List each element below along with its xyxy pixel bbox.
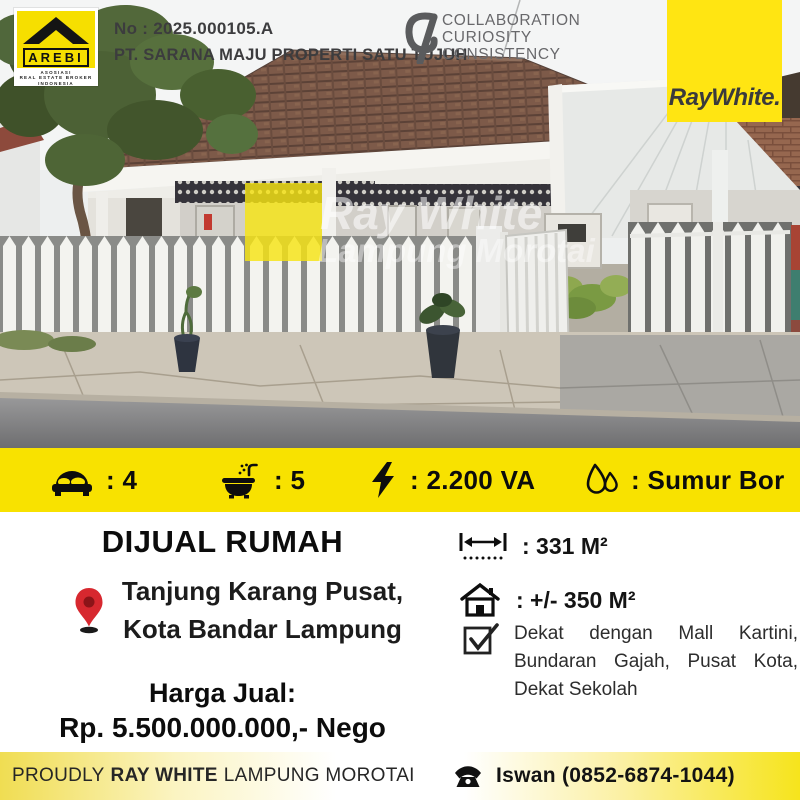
footer-office-name: LAMPUNG MOROTAI [224, 765, 415, 787]
seventeen-monogram-icon [398, 8, 438, 64]
location-row: Tanjung Karang Pusat, Kota Bandar Lampun… [30, 572, 445, 648]
raywhite-logo: RayWhite. [667, 0, 782, 122]
land-size-row: : 331 M² [458, 526, 636, 566]
phone-icon [452, 763, 484, 789]
agent-phone: Iswan (0852-6874-1044) [496, 764, 735, 788]
electricity-value: : 2.200 VA [410, 465, 535, 496]
water-drop-icon [583, 460, 619, 500]
listing-details: DIJUAL RUMAH Tanjung Karang Pusat, Kota … [0, 512, 800, 752]
arebi-sub-line3: INDONESIA [20, 81, 93, 87]
bedrooms-item: : 4 [50, 448, 137, 512]
bedrooms-count: : 4 [106, 465, 137, 496]
water-source-value: : Sumur Bor [631, 465, 785, 496]
arebi-logo-badge: AREBI [17, 11, 95, 68]
price-label: Harga Jual: [0, 678, 445, 709]
electricity-icon [368, 460, 398, 500]
watermark-yellow-box [245, 183, 322, 261]
values-line3: CONSISTENCY [442, 46, 580, 63]
location-line1: Tanjung Karang Pusat, [122, 572, 403, 610]
nearby-text: Dekat dengan Mall Kartini, Bundaran Gaja… [514, 620, 798, 704]
nearby-row: Dekat dengan Mall Kartini, Bundaran Gaja… [462, 620, 798, 704]
arebi-logo: AREBI ASOSIASI REAL ESTATE BROKER INDONE… [14, 8, 98, 86]
electricity-item: : 2.200 VA [368, 448, 535, 512]
land-size-value: : 331 M² [522, 533, 608, 560]
footer-office: PROUDLY RAY WHITE LAMPUNG MOROTAI [12, 752, 415, 800]
footer-brand: RAY WHITE [111, 765, 218, 787]
arebi-sub-line2: REAL ESTATE BROKER [20, 75, 93, 81]
land-width-icon [458, 530, 508, 562]
location-line2: Kota Bandar Lampung [122, 610, 403, 648]
house-photo: Ray White Lampung Morotai AREBI ASOSIASI… [0, 0, 800, 448]
map-pin-icon [72, 586, 106, 634]
photo-watermark-office: Lampung Morotai [318, 232, 595, 270]
values-line2: CURIOSITY [442, 29, 580, 46]
house-icon [458, 581, 502, 619]
footer-bar: PROUDLY RAY WHITE LAMPUNG MOROTAI Iswan … [0, 752, 800, 800]
water-source-item: : Sumur Bor [583, 448, 785, 512]
size-rows: : 331 M² : +/- 350 M² [458, 526, 636, 634]
arebi-roof-icon [21, 14, 91, 46]
bathrooms-count: : 5 [274, 465, 305, 496]
bathrooms-item: : 5 [218, 448, 305, 512]
property-flyer: Ray White Lampung Morotai AREBI ASOSIASI… [0, 0, 800, 800]
values-logo: COLLABORATION CURIOSITY CONSISTENCY [398, 8, 580, 64]
price-value: Rp. 5.500.000.000,- Nego [0, 712, 445, 744]
checkbox-icon [462, 620, 500, 656]
footer-proudly: PROUDLY [12, 765, 105, 787]
values-line1: COLLABORATION [442, 12, 580, 29]
bath-icon [218, 461, 262, 499]
arebi-logo-name: AREBI [23, 48, 88, 67]
amenities-bar: : 4 : 5 : 2.200 VA : [0, 448, 800, 512]
footer-contact: Iswan (0852-6874-1044) [452, 752, 735, 800]
building-size-row: : +/- 350 M² [458, 580, 636, 620]
raywhite-logo-text: RayWhite. [667, 84, 782, 112]
building-size-value: : +/- 350 M² [516, 587, 636, 614]
listing-title: DIJUAL RUMAH [0, 524, 445, 560]
bed-icon [50, 463, 94, 497]
